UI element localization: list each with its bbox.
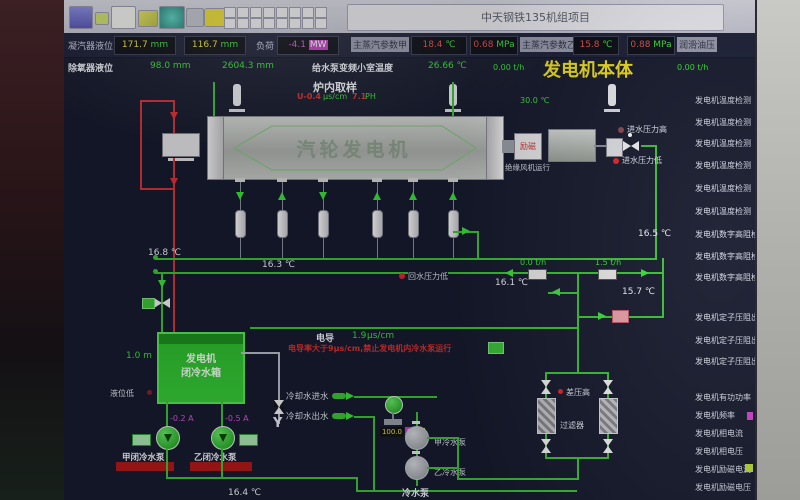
flow-meter[interactable] (528, 269, 547, 280)
link-icon[interactable] (186, 8, 204, 27)
sidebar-item: 发电机数字高阻检测 (695, 251, 755, 262)
isolation-valve[interactable] (318, 210, 329, 238)
seal-oil-line (140, 100, 175, 102)
conductivity-unit: μs/cm (367, 331, 394, 341)
toolbar-grid-button[interactable] (250, 18, 262, 29)
steam-b-temp[interactable]: 15.8 ℃ (573, 36, 619, 55)
valve-body (384, 419, 402, 425)
cooling-outlet-line (354, 416, 373, 418)
pump-outlet (427, 437, 457, 439)
loop-frame-left (373, 416, 375, 490)
flow-arrow-left (505, 269, 513, 277)
flow-arrow-up (278, 192, 286, 200)
discharge-header (166, 477, 358, 479)
dp-high-label: 差压高 (566, 387, 590, 398)
supply-header (155, 258, 657, 260)
sample-line (452, 82, 454, 116)
outlet-arrow-pill (332, 413, 346, 419)
pump-a-status-chip (132, 434, 151, 446)
toolbar-grid-button[interactable] (237, 7, 249, 18)
note-icon[interactable] (95, 12, 109, 25)
exciter-box[interactable]: 励磁 (514, 133, 542, 160)
toolbar-grid-button[interactable] (276, 18, 288, 29)
status-row-1: 凝汽器液位 171.7 mm 116.7 mm 负荷 -4.1 MW 主蒸汽参数… (64, 33, 755, 58)
toolbar-grid-button[interactable] (302, 7, 314, 18)
generator-body[interactable]: 汽轮发电机 (223, 116, 488, 180)
sampling-ph-unit: PH (365, 92, 376, 101)
window-titlebar: 中天钢铁135机组项目 (64, 0, 755, 34)
alarm-dot-inlet-high (618, 127, 624, 133)
sidebar-item: 发电机数字高阻检测 (695, 229, 755, 240)
flow-arrow-down (170, 178, 178, 186)
sample-pipe (250, 327, 577, 329)
display-icon[interactable] (69, 6, 93, 29)
deaerator-level-1[interactable]: 98.0 mm (150, 61, 190, 71)
lube-oil-label: 润滑油压 (677, 37, 717, 52)
bypass-line (477, 231, 479, 258)
recycle-icon[interactable] (159, 6, 185, 29)
left-temp: 16.8 ℃ (148, 248, 181, 258)
steam-flow-right[interactable]: 0.00 t/h (677, 63, 708, 72)
y-strainer-icon: Y (273, 416, 282, 431)
steam-flow-left[interactable]: 0.00 t/h (493, 63, 524, 72)
pump-suction (221, 400, 223, 427)
inlet-pressure-low-label: 进水压力低 (622, 155, 662, 166)
sampling-conductivity-unit: μs/cm (323, 92, 347, 101)
pump-room-temp[interactable]: 26.66 ℃ (428, 61, 467, 71)
inlet-arrow-pill (332, 393, 346, 399)
right-downcomer (662, 258, 664, 316)
filter-outlet-valve[interactable] (541, 439, 552, 453)
top-temp-value[interactable]: 30.0 ℃ (520, 96, 549, 105)
sidebar-item: 发电机定子压阻出口 (695, 312, 755, 323)
tank-outlet-line (241, 352, 279, 354)
chart-icon[interactable] (138, 10, 158, 27)
flow-1-value[interactable]: 0.0 t/h (520, 258, 546, 267)
sidebar-item: 发电机数字高阻检测 (695, 272, 755, 283)
valve-opening-value[interactable]: 100.0 (380, 427, 404, 437)
inlet-temp: 16.5 ℃ (638, 229, 671, 239)
motorized-valve[interactable] (385, 396, 403, 414)
isolation-valve[interactable] (235, 210, 246, 238)
steam-a-temp[interactable]: 18.4 ℃ (411, 36, 467, 55)
level2-value[interactable]: 116.7 mm (184, 36, 246, 55)
flow-arrow-right (462, 227, 470, 235)
sampling-probe[interactable] (604, 84, 620, 116)
inlet-pressure-high-label: 进水压力高 (627, 124, 667, 135)
filter-a[interactable] (537, 398, 556, 434)
pump-discharge (166, 448, 168, 477)
pump-suction (166, 400, 168, 427)
sidebar-item: 发电机温度检测 (695, 138, 755, 149)
cooling-pump-bottom-label: 冷水泵 (402, 486, 429, 499)
pump-tick (412, 421, 420, 424)
instrument-box[interactable] (606, 138, 623, 157)
return-pressure-low-label: 回水压力低 (408, 271, 448, 282)
closed-cooling-pump-a[interactable] (156, 426, 180, 450)
cooling-inlet-label: 冷却水进水 (286, 390, 329, 402)
closed-cooling-tank[interactable]: 发电机 闭冷水箱 (157, 332, 245, 404)
flow-2-value[interactable]: 1.5 t/h (595, 258, 621, 267)
sidebar-item: 发电机温度检测 (695, 183, 755, 194)
probe-bottle-icon (608, 84, 616, 106)
pump-outlet (427, 467, 457, 469)
valve-icon[interactable] (623, 141, 639, 152)
window-title[interactable]: 中天钢铁135机组项目 (347, 4, 724, 31)
flow-arrow-right (598, 312, 606, 320)
flow-arrow-down (319, 192, 327, 200)
discharge-header (356, 477, 358, 490)
level1-value[interactable]: 171.7 mm (114, 36, 176, 55)
main-steam-a-label: 主蒸汽参数甲 (351, 37, 409, 52)
flow-arrow-left (552, 288, 560, 296)
sidebar-value-sliver (745, 464, 753, 472)
toolbar-grid-button[interactable] (315, 18, 327, 29)
toolbar-grid-button[interactable] (237, 18, 249, 29)
pressure-instrument[interactable] (612, 310, 629, 323)
sidebar-item: 发电机定子压阻出口 (695, 335, 755, 346)
isolation-valve[interactable] (372, 210, 383, 238)
alarm-dot-inlet-low (613, 158, 619, 164)
flow-arrow-down (170, 112, 178, 120)
pump-arrow-icon (219, 434, 227, 442)
level-low-label: 液位低 (110, 388, 134, 399)
flow-arrow-right (346, 392, 354, 400)
flow-meter[interactable] (598, 269, 617, 280)
toolbar-grid-button[interactable] (224, 18, 236, 29)
probe-base (604, 109, 620, 112)
flow-arrow-down (236, 192, 244, 200)
generator-label: 汽轮发电机 (264, 135, 444, 162)
cooling-outlet-label: 冷却水出水 (286, 410, 329, 422)
isolation-valve[interactable] (408, 210, 419, 238)
drain-valve[interactable] (274, 400, 285, 414)
loop-frame-right (457, 437, 459, 478)
probe-base (229, 109, 245, 112)
flow-arrow-right (641, 269, 649, 277)
flow-arrow-down (158, 280, 166, 288)
sidebar-item: 发电机相电流 (695, 428, 755, 439)
filter-label: 过滤器 (560, 420, 584, 431)
alarm-dot-return-low (399, 273, 405, 279)
filter-outlet (577, 457, 579, 478)
tank-level-value[interactable]: 1.0 m (126, 351, 152, 361)
steam-a-press[interactable]: 0.68 MPa (470, 36, 518, 55)
toolbar-grid-button[interactable] (263, 18, 275, 29)
photo-background-left (0, 0, 64, 500)
branch-temp: 15.7 ℃ (622, 287, 655, 297)
bottom-header (356, 490, 577, 492)
bottom-temp: 16.4 ℃ (228, 488, 261, 498)
cooling-pump-b[interactable] (405, 456, 429, 480)
shaft-coupling (502, 140, 514, 153)
sample-line (213, 82, 215, 116)
pump-tick (412, 451, 420, 454)
conductivity-value[interactable]: 1.9 (352, 331, 366, 341)
deaerator-level-2[interactable]: 2604.3 mm (222, 61, 274, 71)
pump-discharge (221, 448, 223, 477)
page-title: 发电机本体 (543, 56, 633, 82)
closed-cooling-pump-b[interactable] (211, 426, 235, 450)
pump-arrow-icon (164, 434, 172, 442)
main-steam-b-label: 主蒸汽参数乙 (520, 37, 578, 52)
sidebar-item: 发电机温度检测 (695, 95, 755, 106)
seal-oil-line (140, 188, 175, 190)
isolation-valve[interactable] (277, 210, 288, 238)
sampling-probe[interactable] (229, 84, 245, 116)
bearing-box[interactable] (162, 133, 200, 157)
load-label: 负荷 (256, 39, 274, 52)
tank-label-line1: 发电机 (159, 350, 243, 365)
flow-arrow-up (449, 192, 457, 200)
deaerator-level-label: 除氧器液位 (68, 61, 113, 74)
tank-label-line2: 闭冷水箱 (159, 364, 243, 379)
connector-line (594, 145, 606, 147)
filter-inlet-valve[interactable] (603, 380, 614, 394)
flow-arrow-up (409, 192, 417, 200)
manual-valve[interactable] (154, 298, 170, 309)
load-value[interactable]: -4.1 MW (277, 36, 339, 55)
sidebar-item: 发电机有功功率 (695, 392, 755, 403)
sidebar-item: 发电机定子压阻出口 (695, 356, 755, 367)
photo-of-dcs-monitor: 中天钢铁135机组项目 凝汽器液位 171.7 mm 116.7 mm 负荷 -… (0, 0, 800, 500)
filter-return-line (457, 478, 579, 480)
photo-background-wall (755, 0, 800, 500)
toolbar-grid-button[interactable] (263, 7, 275, 18)
seal-oil-line (140, 100, 142, 190)
alarm-dot-level-low (147, 390, 152, 395)
toolbar-grid-button[interactable] (289, 18, 301, 29)
header-joint (153, 269, 158, 274)
sidebar-item: 发电机温度检测 (695, 160, 755, 171)
filter-outlet-valve[interactable] (603, 439, 614, 453)
sidebar-item: 发电机温度检测 (695, 206, 755, 217)
filter-frame (545, 372, 609, 374)
image-icon[interactable] (111, 6, 136, 29)
filter-feed-line (577, 272, 579, 372)
sidebar-item: 发电机温度检测 (695, 117, 755, 128)
sidebar-value-sliver (747, 412, 753, 420)
return-temp: 16.1 ℃ (495, 278, 528, 288)
isolation-valve[interactable] (448, 210, 459, 238)
toolbar-grid-button[interactable] (250, 7, 262, 18)
pump-a-current[interactable]: -0.2 A (170, 414, 194, 423)
sidebar-item: 发电机相电压 (695, 446, 755, 457)
pump-room-temp-label: 给水泵变频小室温度 (312, 61, 393, 74)
steam-b-press[interactable]: 0.88 MPa (627, 36, 675, 55)
probe-bottle-icon (233, 84, 241, 106)
sidebar-item: 发电机励磁电压 (695, 482, 755, 493)
insulation-fan-status: 绝缘风机运行 (505, 162, 550, 173)
toolbar-grid-button[interactable] (276, 7, 288, 18)
valve-handle (142, 298, 155, 309)
dcs-screen: 中天钢铁135机组项目 凝汽器液位 171.7 mm 116.7 mm 负荷 -… (64, 0, 755, 500)
sidebar-item: 发电机频率 (695, 410, 755, 421)
alarm-dot-dp-high (558, 389, 563, 394)
pump-b-current[interactable]: -0.5 A (225, 414, 249, 423)
exciter-unit[interactable] (548, 129, 596, 162)
pump-b-status-chip (239, 434, 258, 446)
header-temp: 16.3 ℃ (262, 260, 295, 270)
ack-button[interactable] (488, 342, 504, 354)
filter-b[interactable] (599, 398, 618, 434)
toolbar-grid-button[interactable] (302, 18, 314, 29)
sampling-conductivity-value[interactable]: U-0.4 (297, 92, 321, 101)
condenser-level-label: 凝汽器液位 (68, 39, 113, 52)
flow-arrow-right (346, 412, 354, 420)
toolbar-grid-button[interactable] (315, 7, 327, 18)
conductivity-warning-text: 电导率大于9μs/cm,禁止发电机内冷水泵运行 (288, 343, 451, 354)
filter-inlet-valve[interactable] (541, 380, 552, 394)
bearing-box-base (168, 158, 194, 161)
flow-arrow-up (373, 192, 381, 200)
cooling-pump-a[interactable] (405, 426, 429, 450)
toolbar-grid-button[interactable] (289, 7, 301, 18)
toolbar-grid-button[interactable] (224, 7, 236, 18)
